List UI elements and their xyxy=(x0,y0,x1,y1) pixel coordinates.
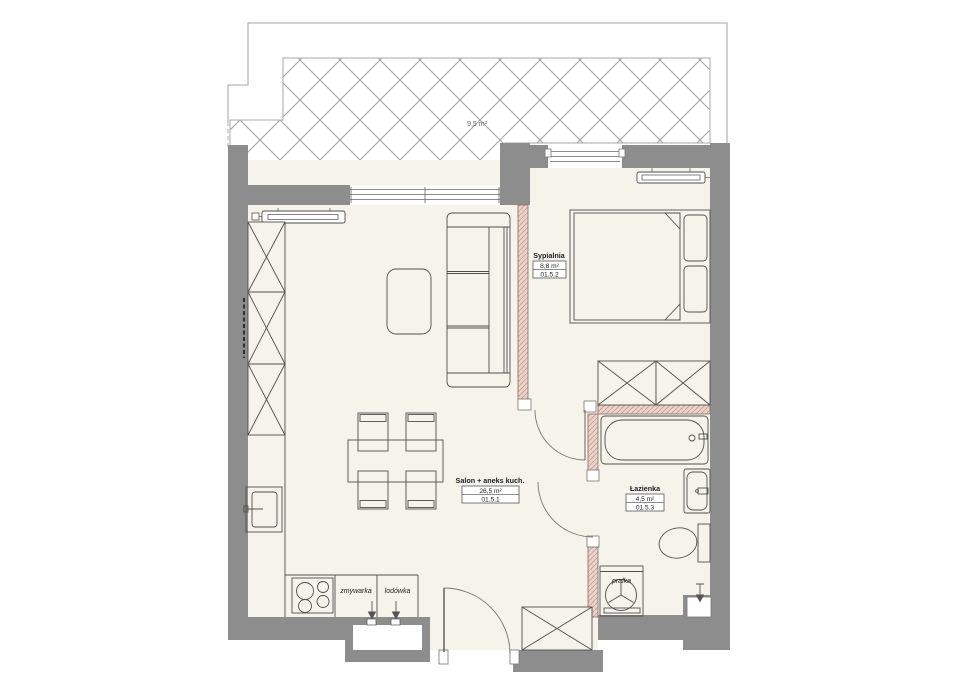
fridge-label: lodówka xyxy=(385,588,411,595)
partition-bathroom-left-b xyxy=(588,547,598,617)
wall-left xyxy=(228,145,248,640)
bathroom-label: Łazienka 4,5 m² 01.5.3 xyxy=(626,484,664,512)
bathroom-name: Łazienka xyxy=(630,484,661,493)
living-room-id: 01.5.1 xyxy=(481,497,500,504)
bedroom-id: 01.5.2 xyxy=(540,272,559,279)
living-room-name: Salon + aneks kuch. xyxy=(456,476,525,485)
bedroom-wardrobe xyxy=(598,361,710,405)
floor-plan-drawing: 9,5 m² xyxy=(0,0,960,688)
wall-top-left xyxy=(248,185,350,205)
terrace-area-label: 9,5 m² xyxy=(467,121,488,128)
partition-bathroom-top xyxy=(598,405,710,414)
jamb-bath-door-bottom xyxy=(587,536,599,547)
dining-table xyxy=(348,440,443,482)
wall-right xyxy=(710,143,730,650)
partition-living-bedroom xyxy=(518,205,528,400)
bathroom-area: 4,5 m² xyxy=(636,496,655,503)
wall-bottom-left xyxy=(228,617,345,640)
bedroom-window xyxy=(545,145,625,168)
partition-bathroom-left-a xyxy=(588,414,598,471)
dishwasher-label: zmywarka xyxy=(339,588,372,595)
wall-bedroom-top-b xyxy=(622,145,710,168)
jamb-bedroom-door-right xyxy=(584,401,596,412)
living-room-label: Salon + aneks kuch. 26,5 m² 01.5.1 xyxy=(456,476,525,504)
tall-cabinets xyxy=(244,222,285,435)
bedroom-label: Sypialnia 8,8 m² 01.5.2 xyxy=(533,251,566,279)
wall-entry-right xyxy=(513,650,603,672)
bedroom-area: 8,8 m² xyxy=(540,263,559,270)
living-room-area: 26,5 m² xyxy=(479,488,502,495)
floor-plan-page: 9,5 m² xyxy=(0,0,960,688)
sofa xyxy=(447,213,510,387)
coffee-table xyxy=(387,269,431,334)
bathroom-id: 01.5.3 xyxy=(636,505,655,512)
bedroom-name: Sypialnia xyxy=(533,251,566,260)
wall-niche xyxy=(353,625,422,650)
wall-pillar-mid xyxy=(500,143,530,205)
washer-label: pralka xyxy=(611,578,631,585)
jamb-bath-door-top xyxy=(587,470,599,481)
entrance-wardrobe xyxy=(522,607,592,650)
balcony-window xyxy=(350,185,500,205)
jamb-bedroom-door-left xyxy=(518,399,531,410)
